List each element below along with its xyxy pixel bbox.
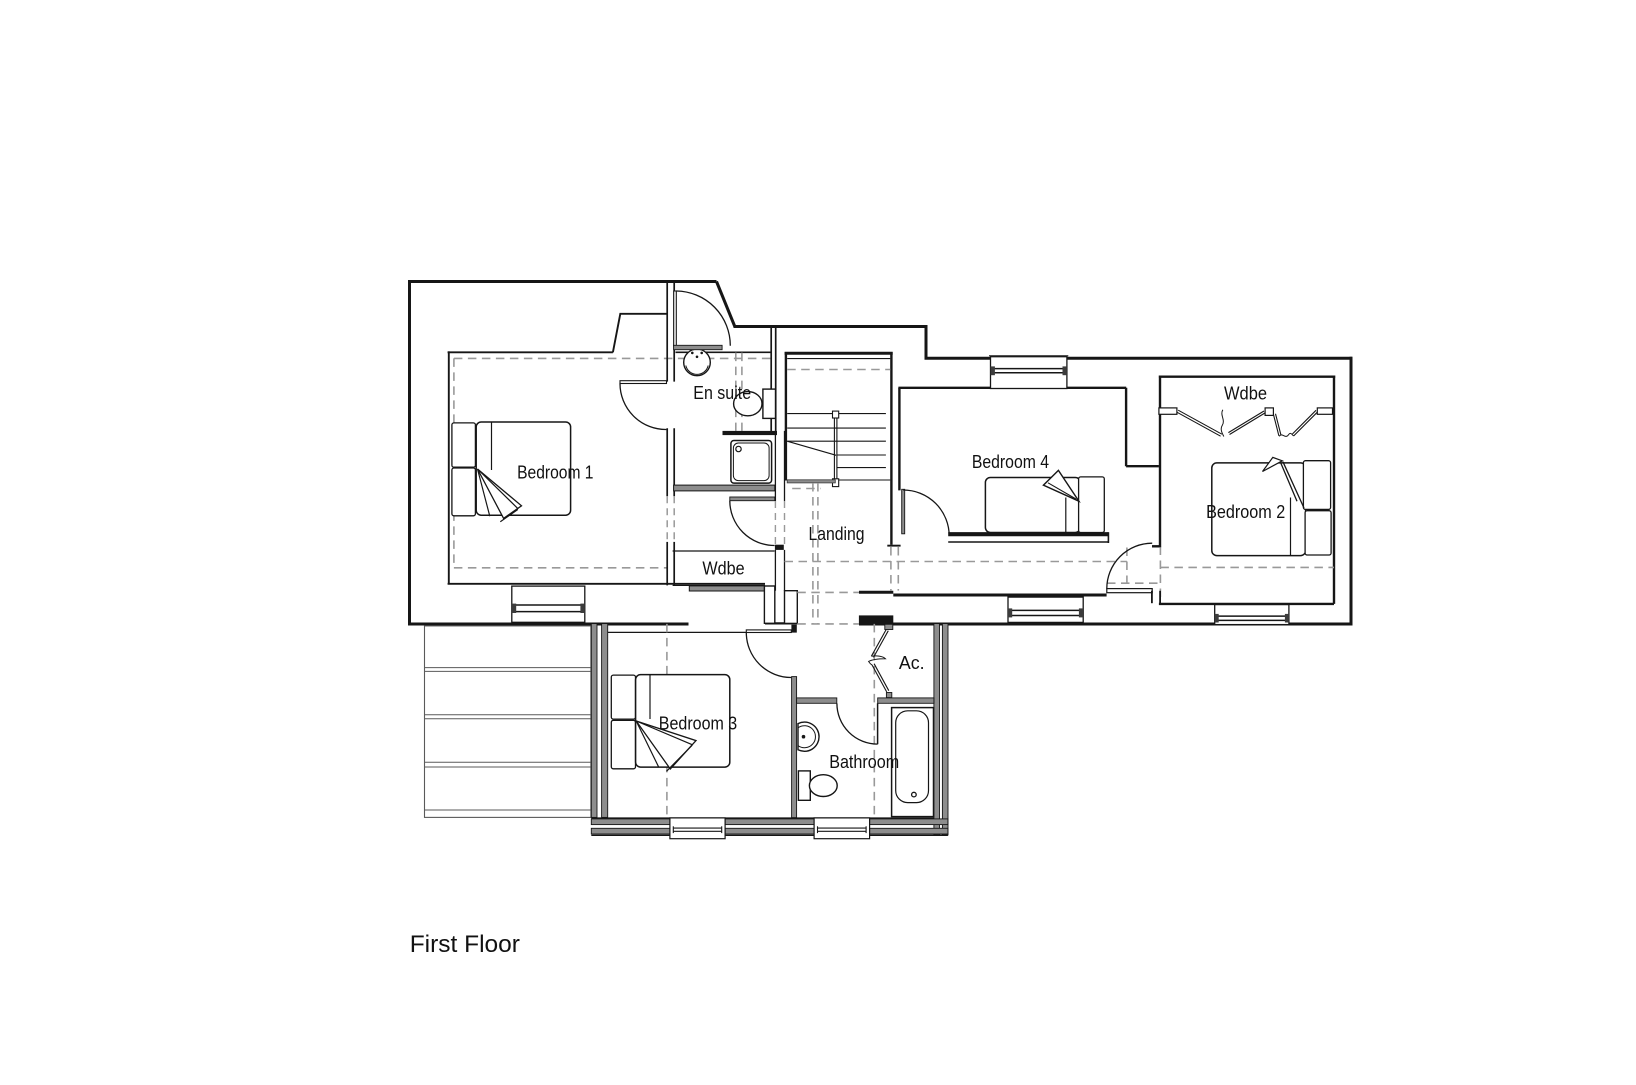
svg-text:Bedroom 2: Bedroom 2 <box>1206 501 1285 522</box>
svg-text:Bedroom 1: Bedroom 1 <box>517 462 593 483</box>
svg-text:Ac.: Ac. <box>899 652 925 673</box>
svg-text:Landing: Landing <box>809 523 865 544</box>
svg-text:Wdbe: Wdbe <box>1224 382 1267 403</box>
svg-text:Bedroom 3: Bedroom 3 <box>659 713 737 734</box>
svg-text:Bathroom: Bathroom <box>829 751 899 772</box>
svg-text:First Floor: First Floor <box>410 931 520 958</box>
svg-text:Wdbe: Wdbe <box>702 557 744 578</box>
svg-text:Bedroom 4: Bedroom 4 <box>972 451 1049 472</box>
svg-text:En suite: En suite <box>693 382 751 403</box>
